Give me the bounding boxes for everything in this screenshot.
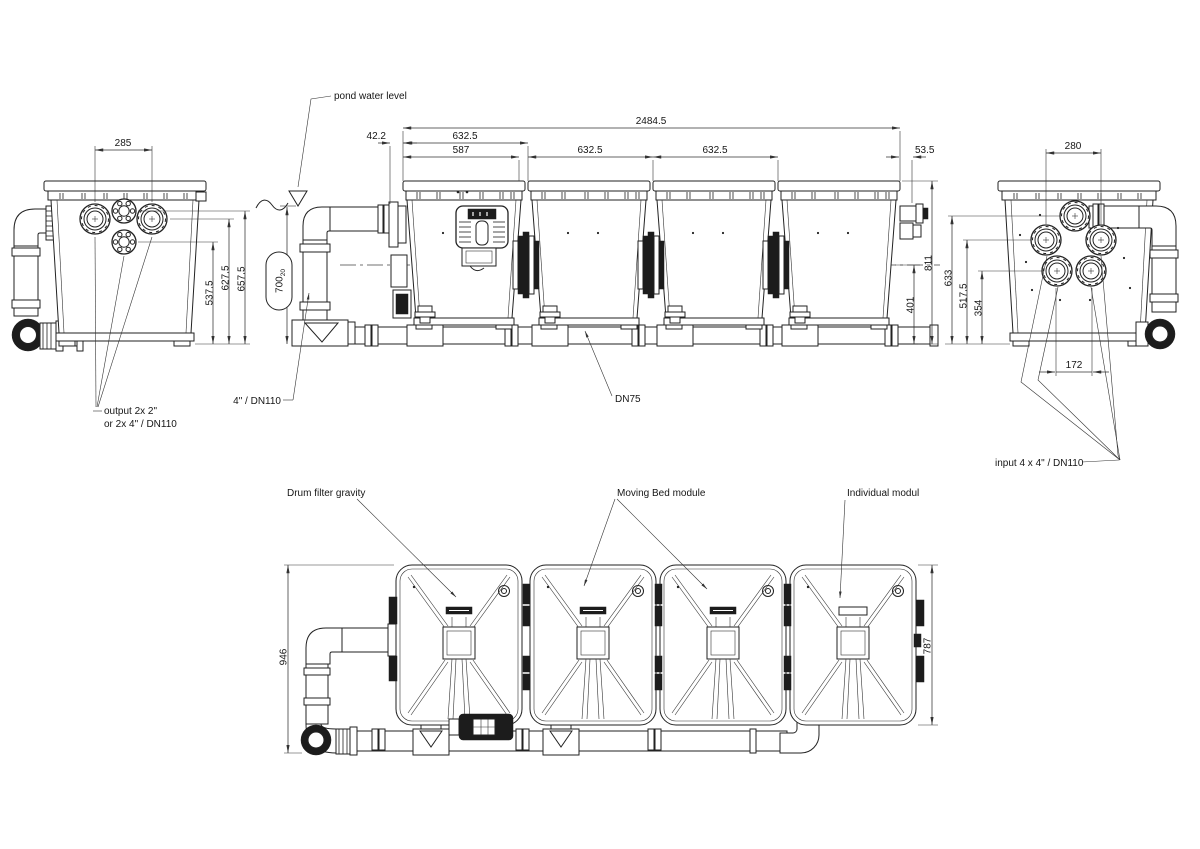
svg-text:285: 285 [115, 138, 132, 149]
svg-text:42.2: 42.2 [367, 131, 387, 142]
filter-system-drawing: pond water level 70020 2484.5 42.2 632.5… [0, 0, 1200, 849]
svg-text:946: 946 [279, 648, 290, 665]
input-label: input 4 x 4" / DN110 [995, 458, 1084, 469]
tank-coupling-3 [763, 232, 789, 298]
drum-filter-label: Drum filter gravity [287, 488, 365, 499]
tank4-outlet-flanges [900, 204, 928, 239]
svg-text:280: 280 [1065, 141, 1082, 152]
output-port-left [80, 204, 110, 234]
svg-text:632.5: 632.5 [577, 145, 602, 156]
water-level-icon [256, 191, 307, 210]
output-flange-top [112, 199, 136, 223]
svg-text:632.5: 632.5 [452, 131, 477, 142]
module-4-top [790, 565, 916, 725]
svg-text:2484.5: 2484.5 [636, 116, 667, 127]
left-side-view: 285 537.5 627.5 657.5 output 2x 2" or 2x… [12, 138, 250, 430]
front-bottom-manifold [355, 325, 938, 346]
front-supply-pipe [292, 202, 411, 346]
module-3-top [660, 565, 786, 725]
individual-module-label: Individual modul [847, 488, 919, 499]
output-flange-bottom [112, 230, 136, 254]
svg-text:632.5: 632.5 [702, 145, 727, 156]
output-label-line2: or 2x 4" / DN110 [104, 419, 177, 430]
output-label-line1: output 2x 2" [104, 406, 157, 417]
svg-text:811: 811 [924, 255, 935, 271]
brand-plate-4 [839, 607, 867, 615]
module-1-top [396, 565, 522, 725]
svg-text:633: 633 [944, 269, 955, 286]
right-side-view: 280 633 517.5 354 172 input 4 x 4" / DN1… [944, 141, 1179, 469]
top-view: 946 787 Drum filter gravity Moving Bed m… [279, 488, 939, 755]
svg-text:517.5: 517.5 [959, 283, 970, 308]
svg-text:172: 172 [1066, 360, 1083, 371]
svg-text:4" / DN110: 4" / DN110 [233, 396, 281, 407]
input-port-top [1060, 201, 1090, 231]
input-port-mid-right [1086, 225, 1116, 255]
technical-drawing-page: pond water level 70020 2484.5 42.2 632.5… [0, 0, 1200, 849]
module-2-top [530, 565, 656, 725]
svg-text:537.5: 537.5 [205, 280, 216, 305]
front-view: pond water level 70020 2484.5 42.2 632.5… [233, 91, 940, 407]
output-port-right [137, 204, 167, 234]
input-port-mid-left [1031, 225, 1061, 255]
svg-text:53.5: 53.5 [915, 145, 935, 156]
svg-text:DN75: DN75 [615, 394, 641, 405]
svg-text:787: 787 [923, 637, 934, 654]
tank-coupling-1 [513, 232, 539, 298]
moving-bed-label: Moving Bed module [617, 488, 706, 499]
svg-text:627.5: 627.5 [221, 265, 232, 290]
svg-text:587: 587 [453, 145, 470, 156]
tank-coupling-2 [638, 232, 664, 298]
input-port-bottom-left [1042, 256, 1072, 286]
svg-text:401: 401 [906, 296, 917, 313]
svg-text:354: 354 [974, 299, 985, 316]
svg-text:657.5: 657.5 [237, 266, 248, 291]
pond-water-level-label: pond water level [334, 91, 407, 102]
